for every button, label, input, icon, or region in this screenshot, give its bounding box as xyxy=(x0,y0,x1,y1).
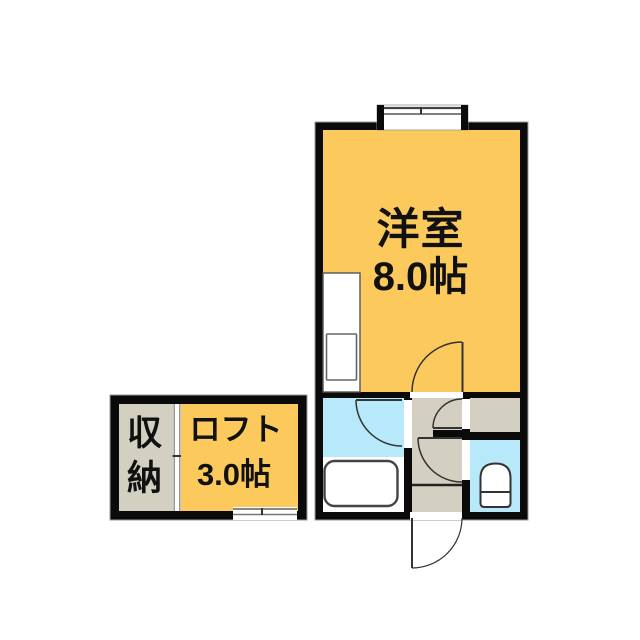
loft-window xyxy=(233,507,297,520)
main-room-doorway xyxy=(410,392,463,398)
bay-window-post xyxy=(377,105,384,130)
storage-room-label: 収納 xyxy=(125,412,164,502)
bay-window-post xyxy=(461,105,468,130)
entrance-doorway xyxy=(410,512,462,520)
floor-plan-drawing xyxy=(0,0,640,640)
kitchen-sink xyxy=(327,334,357,380)
bathroom-floor xyxy=(323,398,404,457)
hall-stub-wall xyxy=(433,430,462,438)
bay-window xyxy=(377,105,468,130)
entry-closet-floor xyxy=(470,398,520,432)
loft-size-label: 3.0帖 xyxy=(176,459,292,490)
toilet-bowl xyxy=(481,464,511,508)
floor-plan: 洋室 8.0帖 収納 ロフト 3.0帖 xyxy=(0,0,640,640)
toilet-doorway xyxy=(462,440,470,480)
main-room-size-label: 8.0帖 xyxy=(320,257,521,297)
toilet xyxy=(481,464,511,508)
bathtub xyxy=(325,461,398,506)
entrance-door xyxy=(412,518,462,568)
loft-name-label: ロフト xyxy=(178,414,294,445)
closet-doorway xyxy=(462,399,470,429)
hallway-floor xyxy=(412,398,462,512)
bathroom-doorway xyxy=(404,400,412,448)
main-room-name-label: 洋室 xyxy=(320,209,521,252)
